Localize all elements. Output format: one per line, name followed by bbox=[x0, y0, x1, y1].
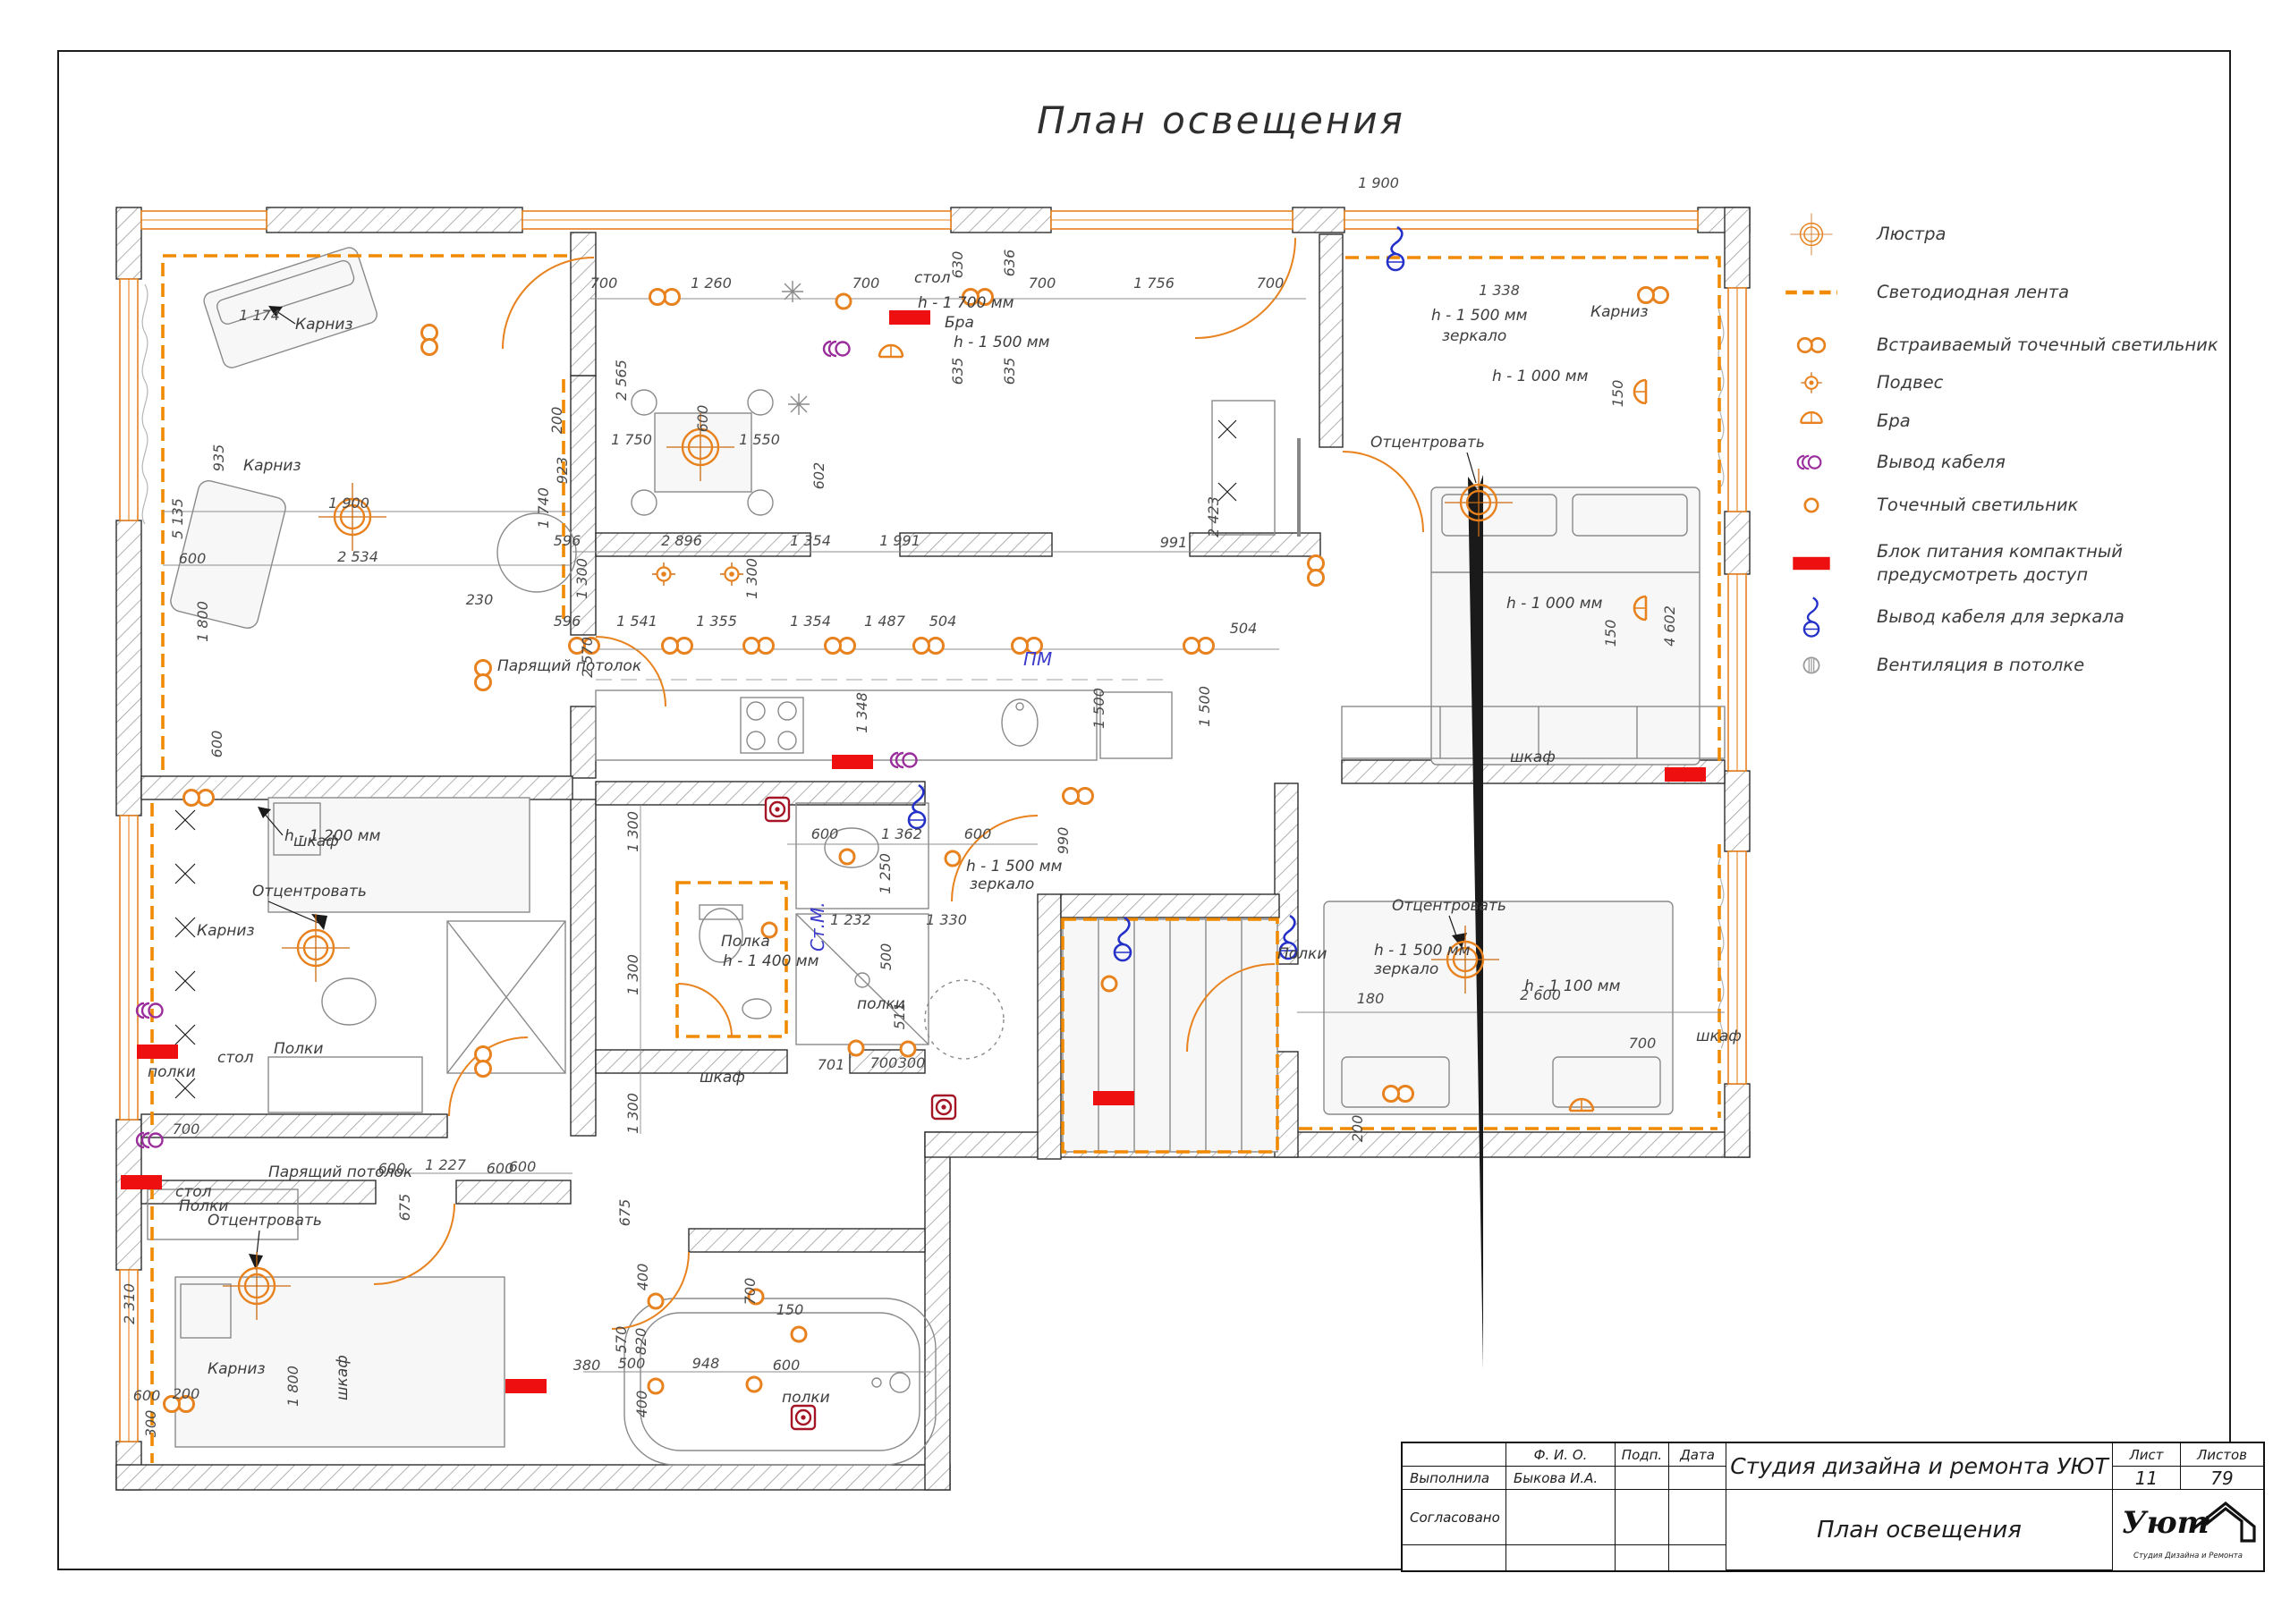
vent-icon bbox=[766, 798, 789, 821]
plan-label: h - 1 100 мм bbox=[1524, 977, 1621, 995]
tb-blank bbox=[1403, 1443, 1506, 1467]
dimension: 1 500 bbox=[1196, 686, 1213, 727]
dimension: 1 900 bbox=[328, 495, 369, 512]
tb-sheets-label: Листов bbox=[2181, 1443, 2263, 1467]
plan-label: Отцентровать bbox=[1370, 434, 1485, 452]
plan-label: Парящий потолок bbox=[497, 657, 642, 675]
legend-item: Люстра bbox=[1778, 206, 1946, 263]
dimension: 602 bbox=[810, 462, 827, 490]
legend-item: Вывод кабеля для зеркала bbox=[1778, 596, 2125, 639]
tb-col-fio: Ф. И. О. bbox=[1506, 1443, 1616, 1467]
dimension: 1 355 bbox=[696, 613, 737, 630]
legend-item-label: Вывод кабеля для зеркала bbox=[1877, 605, 2125, 629]
power-icon bbox=[121, 1175, 162, 1189]
dspot-icon bbox=[1778, 324, 1845, 367]
dimension: 1 330 bbox=[926, 911, 967, 928]
dimension: 200 bbox=[173, 1385, 200, 1402]
legend-item: Встраиваемый точечный светильник bbox=[1778, 324, 2218, 367]
power-icon bbox=[832, 755, 873, 769]
plan-label: h - 1 000 мм bbox=[1506, 595, 1603, 613]
spot-icon bbox=[792, 1327, 806, 1341]
dimension: 2 534 bbox=[337, 548, 378, 565]
plan-label: Полки bbox=[1277, 945, 1327, 963]
legend: Люстра Светодиодная лента Встраиваемый т… bbox=[1778, 206, 2252, 715]
legend-item-label: Блок питания компактныйпредусмотреть дос… bbox=[1877, 540, 2123, 588]
plan-label: Отцентровать bbox=[252, 883, 367, 901]
spot-icon bbox=[649, 1379, 663, 1393]
cable-icon bbox=[1778, 441, 1845, 484]
plan-label: Карниз bbox=[208, 1360, 265, 1378]
dspot-icon bbox=[744, 639, 774, 654]
pendant-icon bbox=[1778, 361, 1845, 404]
dimension: 600 bbox=[179, 550, 207, 567]
dimension: 400 bbox=[634, 1264, 651, 1291]
plan-label: h - 1 500 мм bbox=[1374, 942, 1471, 960]
led-icon bbox=[1778, 271, 1845, 314]
power-icon bbox=[889, 310, 930, 325]
dimension: 150 bbox=[1602, 620, 1619, 647]
dimension: 1 800 bbox=[194, 601, 211, 642]
dimension: 1 300 bbox=[743, 558, 760, 599]
dimension: 200 bbox=[548, 407, 565, 435]
dspot-icon bbox=[826, 639, 855, 654]
legend-item: Вентиляция в потолке bbox=[1778, 644, 2084, 687]
spot-icon bbox=[649, 1294, 663, 1308]
legend-item-label: Вывод кабеля bbox=[1877, 451, 2006, 474]
power-icon bbox=[1665, 767, 1706, 782]
company-logo: Уют Студия Дизайна и Ремонта bbox=[2113, 1490, 2263, 1570]
legend-item-label: Люстра bbox=[1877, 223, 1946, 246]
dimension: 700 bbox=[173, 1121, 200, 1138]
plan-label: Карниз bbox=[1590, 303, 1648, 321]
legend-item: Блок питания компактныйпредусмотреть дос… bbox=[1778, 540, 2123, 588]
dimension: 700 bbox=[1029, 275, 1056, 292]
dspot-icon bbox=[1184, 639, 1214, 654]
plan-label: Отцентровать bbox=[1392, 897, 1506, 915]
legend-item-label: Бра bbox=[1877, 410, 1911, 433]
plan-label: Парящий потолок bbox=[268, 1163, 413, 1181]
plan-label: Ст.М. bbox=[807, 901, 828, 952]
dimension: 701 bbox=[818, 1056, 845, 1073]
dimension: 1 487 bbox=[864, 613, 906, 630]
dimension: 4 602 bbox=[1661, 605, 1678, 647]
dimension: 1 991 bbox=[879, 532, 920, 549]
dspot-icon bbox=[184, 791, 214, 806]
plan-label: h - 1 000 мм bbox=[1492, 368, 1589, 385]
dimension: 1 756 bbox=[1133, 275, 1175, 292]
dimension: 150 bbox=[776, 1301, 804, 1318]
dimension: 1 550 bbox=[739, 431, 780, 448]
dimension: 1 300 bbox=[573, 558, 590, 599]
dimension: 600 bbox=[694, 405, 711, 433]
dimension: 2 565 bbox=[613, 359, 630, 401]
legend-item-label: Подвес bbox=[1877, 371, 1943, 394]
dimension: 820 bbox=[632, 1328, 649, 1356]
plan-label: h - 1 200 мм bbox=[284, 827, 381, 845]
dspot-icon bbox=[1384, 1087, 1413, 1102]
dimension: 1 750 bbox=[611, 431, 652, 448]
dimension: 180 bbox=[1357, 990, 1385, 1007]
tb-col-data: Дата bbox=[1669, 1443, 1726, 1467]
plan-label: зеркало bbox=[1442, 327, 1506, 345]
house-roof-icon bbox=[2183, 1500, 2260, 1546]
dimension: 1 362 bbox=[881, 825, 922, 842]
legend-item-label: Вентиляция в потолке bbox=[1877, 654, 2084, 677]
dimension: 200 bbox=[1349, 1115, 1366, 1143]
dspot-icon bbox=[650, 290, 680, 305]
dimension: 596 bbox=[554, 613, 581, 630]
dimension: 1 354 bbox=[790, 532, 831, 549]
chandelier-icon bbox=[1778, 206, 1845, 263]
plan-label: стол bbox=[217, 1049, 254, 1067]
plan-label: полки bbox=[148, 1063, 196, 1081]
legend-item-label: Точечный светильник bbox=[1877, 494, 2078, 517]
dimension: 675 bbox=[396, 1194, 413, 1222]
dimension: 636 bbox=[1001, 250, 1018, 277]
legend-item-label: Светодиодная лента bbox=[1877, 281, 2069, 304]
dimension: 1 338 bbox=[1479, 282, 1520, 299]
plan-label: Карниз bbox=[197, 922, 254, 940]
mirror-icon bbox=[1804, 597, 1819, 636]
dimension: 1 541 bbox=[616, 613, 657, 630]
dimension: 400 bbox=[633, 1391, 650, 1418]
dimension: 630 bbox=[949, 251, 966, 279]
plan-label: Карниз bbox=[243, 457, 301, 475]
dimension: 923 bbox=[554, 457, 571, 485]
dimension: 1 500 bbox=[1090, 688, 1107, 729]
spot-icon bbox=[836, 294, 851, 309]
dimension: 600 bbox=[811, 825, 839, 842]
chandelier-icon bbox=[318, 483, 386, 551]
dimension: 948 bbox=[692, 1355, 720, 1372]
dimension: 700 bbox=[1257, 275, 1285, 292]
pendant-icon bbox=[1801, 372, 1821, 393]
dimension: 675 bbox=[616, 1199, 633, 1227]
dspot-icon bbox=[1309, 556, 1324, 586]
dimension: 1 900 bbox=[1358, 174, 1399, 191]
dimension: 1 354 bbox=[790, 613, 831, 630]
plan-label: h - 1 400 мм bbox=[723, 952, 819, 970]
bra-icon bbox=[1778, 400, 1845, 443]
plan-label: h - 1 700 мм bbox=[918, 294, 1014, 312]
dspot-icon bbox=[663, 639, 692, 654]
plan-label: Полка bbox=[721, 933, 770, 951]
dspot-icon bbox=[914, 639, 944, 654]
dimension: 600 bbox=[133, 1387, 161, 1404]
dimension: 600 bbox=[773, 1357, 801, 1374]
legend-item: Подвес bbox=[1778, 361, 1943, 404]
mirror-icon bbox=[1778, 596, 1845, 639]
plan-label: Карниз bbox=[295, 316, 352, 334]
dimension: 635 bbox=[1001, 358, 1018, 385]
vent-icon bbox=[792, 1406, 815, 1429]
dimension: 1 232 bbox=[830, 911, 871, 928]
dspot-icon bbox=[1798, 338, 1825, 351]
plan-label: шкаф bbox=[700, 1069, 745, 1087]
plan-label: h - 1 500 мм bbox=[954, 334, 1050, 351]
dimension: 1 348 bbox=[853, 692, 870, 733]
chandelier-icon bbox=[282, 914, 350, 982]
spot-icon bbox=[1805, 499, 1818, 512]
dimension: 504 bbox=[929, 613, 957, 630]
dimension: 1 174 bbox=[239, 307, 280, 324]
plan-label: шкаф bbox=[1696, 1028, 1742, 1045]
tb-name-1: Быкова И.А. bbox=[1506, 1467, 1616, 1490]
dimension: 2 310 bbox=[121, 1283, 138, 1324]
dimension: 600 bbox=[509, 1158, 537, 1175]
dimension: 300 bbox=[898, 1054, 926, 1071]
plan-label: Полки bbox=[274, 1040, 323, 1058]
tb-sheets-total: 79 bbox=[2181, 1467, 2263, 1490]
dimension: 1 800 bbox=[284, 1366, 301, 1407]
dspot-icon bbox=[476, 1047, 491, 1077]
dimension: 991 bbox=[1160, 534, 1188, 551]
dimension: 700 bbox=[590, 275, 618, 292]
spot-icon bbox=[849, 1041, 863, 1055]
dimension: 1 300 bbox=[624, 954, 641, 995]
plan-label: зеркало bbox=[1374, 960, 1438, 978]
pendant-icon bbox=[720, 562, 743, 586]
pendant-icon bbox=[652, 562, 675, 586]
power-icon bbox=[505, 1379, 547, 1393]
plan-label: полки bbox=[857, 995, 905, 1013]
dspot-icon bbox=[476, 661, 491, 690]
dimension: 1 300 bbox=[624, 811, 641, 852]
legend-item: Вывод кабеля bbox=[1778, 441, 2006, 484]
plan-label: шкаф bbox=[1510, 749, 1556, 766]
tb-company: Студия дизайна и ремонта УЮТ bbox=[1726, 1443, 2113, 1490]
dimension: 150 bbox=[1609, 380, 1626, 408]
spot-icon bbox=[946, 851, 960, 866]
bra-icon bbox=[1634, 380, 1646, 403]
vent-icon bbox=[1778, 644, 1845, 687]
logo-subtitle: Студия Дизайна и Ремонта bbox=[2133, 1552, 2243, 1561]
plan-label: h - 1 500 мм bbox=[1431, 307, 1528, 325]
dimension: 230 bbox=[466, 591, 494, 608]
dimension: 635 bbox=[949, 358, 966, 385]
tb-sheet-number: 11 bbox=[2113, 1467, 2181, 1490]
dimension: 570 bbox=[613, 1326, 630, 1354]
cable-icon bbox=[824, 342, 850, 356]
bra-icon bbox=[1801, 412, 1821, 423]
dimension: 504 bbox=[1230, 620, 1258, 637]
dimension: 700 bbox=[742, 1278, 759, 1306]
dimension: 1 300 bbox=[624, 1093, 641, 1134]
plan-label: Бра bbox=[945, 314, 974, 332]
vent-icon bbox=[932, 1095, 955, 1119]
dimension: 596 bbox=[554, 532, 581, 549]
plan-label: Отцентровать bbox=[208, 1212, 322, 1230]
tb-drawing-title: План освещения bbox=[1726, 1490, 2113, 1570]
dimension: 700 bbox=[870, 1054, 898, 1071]
spot-icon bbox=[1102, 977, 1116, 991]
power-icon bbox=[137, 1045, 178, 1059]
plan-label: h - 1 500 мм bbox=[966, 858, 1063, 875]
dimension: 600 bbox=[208, 731, 225, 758]
legend-item-label: Встраиваемый точечный светильник bbox=[1877, 334, 2218, 357]
dimension: 935 bbox=[210, 444, 227, 472]
tb-sheet-label: Лист bbox=[2113, 1443, 2181, 1467]
bra-icon bbox=[879, 345, 903, 357]
plan-label: полки bbox=[782, 1389, 830, 1407]
dimension: 500 bbox=[618, 1355, 646, 1372]
tb-col-podp: Подп. bbox=[1616, 1443, 1669, 1467]
spot-icon bbox=[747, 1377, 761, 1391]
legend-item: Бра bbox=[1778, 400, 1911, 443]
cable-icon bbox=[137, 1003, 163, 1018]
plan-label: стол bbox=[914, 269, 951, 287]
dimension: 700 bbox=[1629, 1035, 1657, 1052]
dspot-icon bbox=[1639, 288, 1668, 303]
tb-role-2: Согласовано bbox=[1403, 1490, 1506, 1545]
plan-label: шкаф bbox=[334, 1355, 352, 1400]
dimension: 300 bbox=[142, 1410, 159, 1438]
title-block: Ф. И. О. Подп. Дата Студия дизайна и рем… bbox=[1401, 1442, 2265, 1572]
dimension: 5 135 bbox=[169, 498, 186, 539]
dimension: 1 250 bbox=[877, 853, 894, 894]
dimension: 1 260 bbox=[691, 275, 732, 292]
dimension: 500 bbox=[878, 943, 895, 971]
dimension: 600 bbox=[964, 825, 992, 842]
vent-icon bbox=[1803, 657, 1819, 672]
dimension: 2 423 bbox=[1205, 496, 1222, 537]
dimension: 990 bbox=[1055, 827, 1072, 855]
dimension: 700 bbox=[852, 275, 880, 292]
spot-icon bbox=[1778, 484, 1845, 527]
tb-role-1: Выполнила bbox=[1403, 1467, 1506, 1490]
dimension: 2 896 bbox=[661, 532, 702, 549]
dimension: 1 227 bbox=[425, 1156, 467, 1173]
dspot-icon bbox=[1064, 789, 1093, 804]
legend-item: Точечный светильник bbox=[1778, 484, 2078, 527]
dimension: 380 bbox=[573, 1357, 601, 1374]
dspot-icon bbox=[422, 326, 437, 355]
mirror-icon bbox=[1387, 227, 1404, 270]
plan-label: зеркало bbox=[970, 875, 1034, 893]
dimension: 1 740 bbox=[535, 487, 552, 529]
power-icon bbox=[1778, 542, 1845, 585]
power-icon bbox=[1093, 1091, 1134, 1105]
cable-icon bbox=[1798, 456, 1821, 469]
chandelier-icon bbox=[1790, 213, 1832, 255]
power-icon bbox=[1793, 557, 1829, 570]
plan-label: ПМ bbox=[1023, 648, 1052, 670]
legend-item: Светодиодная лента bbox=[1778, 271, 2069, 314]
spot-icon bbox=[840, 850, 854, 864]
